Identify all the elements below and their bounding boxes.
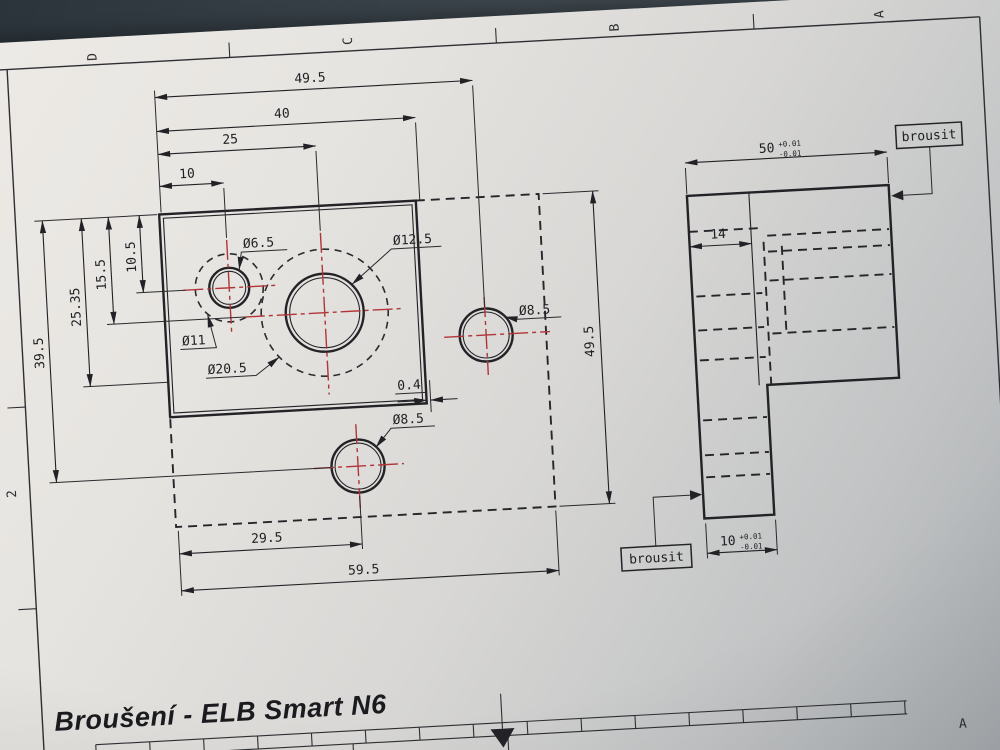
label-hole-large: Ø12.5: [393, 232, 433, 249]
side-step-edge: [749, 193, 759, 386]
dim-25-35: 25.35: [68, 287, 85, 327]
zone-letter-a: A: [872, 10, 887, 19]
drawing-sheet-paper: D C B A 2 A: [0, 0, 1000, 750]
zone-letter-c: C: [341, 37, 356, 46]
zone-ticks-left: [7, 407, 36, 610]
front-left-dimensions: 39.5 25.35 15.5 10.5: [25, 206, 331, 483]
offset-edge-line: [416, 123, 432, 413]
bottom-dim-extension-lines: [177, 486, 559, 596]
side-hidden-rows-right: [767, 229, 894, 333]
dim-50-tol-upper: +0.01: [778, 139, 801, 149]
label-cbore-small: Ø11: [182, 333, 206, 349]
zone-letter-b: B: [608, 23, 623, 32]
right-dim-extension-lines: [543, 191, 616, 507]
dim-50-tol-lower: -0.01: [779, 149, 802, 159]
brousit-leader-bottom: [653, 495, 694, 546]
sheet-frame: D C B A 2 A: [0, 2, 1000, 750]
side-hidden-rows-column: [696, 293, 772, 477]
front-view: 49.5 40 25 10 39.5 25.35 15.5: [18, 56, 619, 603]
front-bottom-dimensions: 29.5 59.5: [177, 486, 559, 596]
dim-49-5-right: 49.5: [582, 325, 599, 357]
dim-59-5: 59.5: [348, 562, 380, 579]
dim-10-tol-upper: +0.01: [739, 531, 762, 541]
brousit-label-bottom: brousit: [629, 550, 685, 568]
dim-49-5-top: 49.5: [294, 70, 326, 87]
side-view: 14 50 +0.01 -0.01 10 +0.01 -0.01: [599, 122, 985, 571]
side-width-dimension: 50 +0.01 -0.01: [684, 134, 888, 194]
dim-10-5: 10.5: [124, 241, 141, 273]
dim-10-side: 10: [720, 534, 736, 550]
front-top-dimensions: 49.5 40 25 10: [154, 62, 485, 324]
centering-mark-triangle: [490, 728, 515, 748]
dim-14: 14: [710, 227, 727, 243]
brousit-arrow-bottom: [690, 490, 703, 501]
label-cbore-large: Ø20.5: [207, 361, 247, 378]
zone-letter-a-bottom: A: [959, 717, 968, 732]
dim-29-5: 29.5: [251, 530, 283, 547]
dim-10: 10: [179, 167, 195, 183]
brousit-label-top: brousit: [901, 127, 957, 145]
drawing-title: Broušení - ELB Smart N6: [54, 689, 388, 737]
dim-40: 40: [274, 106, 290, 122]
dim-line-10: [160, 183, 224, 186]
brousit-arrow-top: [891, 190, 904, 201]
brousit-leader-top: [901, 147, 932, 195]
frame-top-border: [0, 17, 980, 70]
zone-letter-d: D: [85, 52, 100, 61]
leader-hole-large: [350, 246, 443, 284]
dim-50: 50: [758, 141, 774, 157]
dim-line-25: [158, 146, 316, 155]
leader-hole-bottom: [375, 426, 436, 447]
label-hole-right: Ø8.5: [519, 303, 551, 320]
dim-15-5: 15.5: [93, 259, 110, 291]
frame-left-border: [7, 70, 48, 750]
grinding-note-bottom: brousit: [618, 490, 706, 571]
dim-line-10-5: [139, 216, 143, 293]
dim-25: 25: [222, 132, 238, 148]
grinding-note-top: brousit: [887, 122, 965, 201]
zone-row-2: 2: [5, 490, 20, 499]
dim-39-5: 39.5: [32, 337, 49, 369]
label-hole-small: Ø6.5: [243, 235, 275, 252]
technical-drawing-svg: D C B A 2 A: [0, 0, 1000, 750]
photo-of-technical-drawing: D C B A 2 A: [0, 0, 1000, 750]
dim-10-tol-lower: -0.01: [740, 541, 763, 551]
centering-mark-line: [501, 694, 503, 729]
side-hidden-verticals: [764, 241, 790, 385]
title-block-cells: [96, 735, 508, 750]
side-thickness-dimension: 10 +0.01 -0.01: [706, 520, 778, 559]
frame-right-border: [980, 17, 1000, 750]
offset-dim-arrow-right: [431, 399, 458, 400]
label-hole-bottom: Ø8.5: [392, 411, 424, 428]
front-right-dimension: 49.5: [543, 191, 616, 507]
width-dim-extension-lines: [685, 157, 888, 194]
dim-line-14: [690, 244, 752, 247]
dim-0-4: 0.4: [397, 378, 421, 394]
zone-ticks-top: [229, 14, 754, 57]
